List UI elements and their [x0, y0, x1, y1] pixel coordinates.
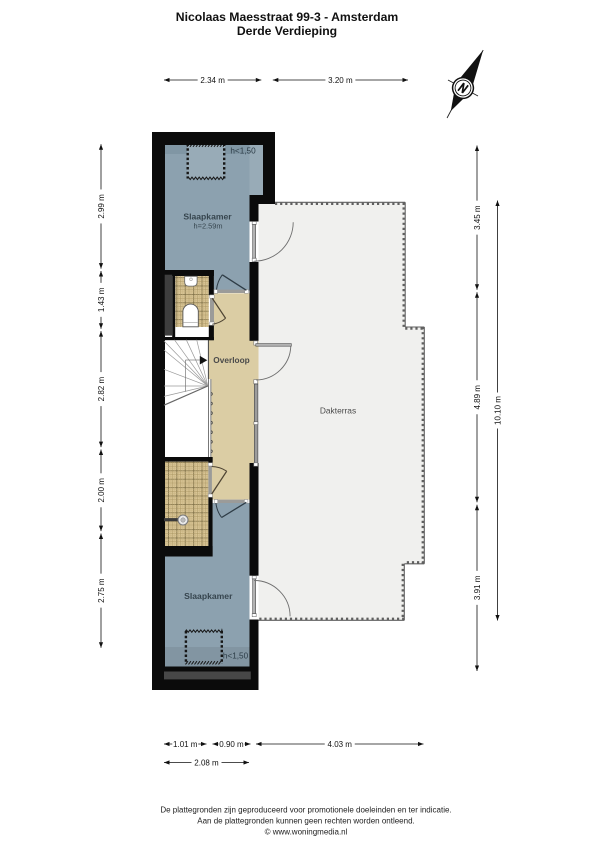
svg-text:2.82 m: 2.82 m	[97, 377, 106, 402]
svg-text:2.34 m: 2.34 m	[200, 76, 225, 85]
svg-text:1.01 m: 1.01 m	[173, 740, 198, 749]
svg-text:4.89 m: 4.89 m	[473, 385, 482, 410]
svg-text:2.75 m: 2.75 m	[97, 578, 106, 603]
svg-text:Aan de plattegronden kunnen ge: Aan de plattegronden kunnen geen rechten…	[197, 817, 415, 826]
svg-text:3.91 m: 3.91 m	[473, 575, 482, 600]
svg-text:Dakterras: Dakterras	[320, 406, 356, 416]
svg-text:0.90 m: 0.90 m	[219, 740, 244, 749]
svg-text:Slaapkamer: Slaapkamer	[184, 591, 233, 601]
svg-text:Derde Verdieping: Derde Verdieping	[237, 24, 337, 38]
svg-text:3.45 m: 3.45 m	[473, 205, 482, 230]
svg-text:2.00 m: 2.00 m	[97, 478, 106, 503]
svg-text:10.10 m: 10.10 m	[493, 396, 502, 425]
svg-text:1.43 m: 1.43 m	[97, 287, 106, 312]
svg-text:De plattegronden zijn geproduc: De plattegronden zijn geproduceerd voor …	[160, 806, 451, 815]
svg-text:Overloop: Overloop	[213, 355, 249, 365]
svg-text:h<1,50: h<1,50	[223, 651, 249, 660]
svg-text:Nicolaas Maesstraat 99-3 - Ams: Nicolaas Maesstraat 99-3 - Amsterdam	[176, 10, 399, 24]
svg-text:2.08 m: 2.08 m	[194, 758, 219, 767]
svg-text:3.20 m: 3.20 m	[328, 76, 353, 85]
svg-text:2.99 m: 2.99 m	[97, 194, 106, 219]
svg-text:Slaapkamer: Slaapkamer	[183, 212, 232, 222]
svg-text:h<1,50: h<1,50	[230, 147, 256, 156]
svg-text:© www.woningmedia.nl: © www.woningmedia.nl	[265, 828, 348, 837]
svg-text:h=2.59m: h=2.59m	[194, 222, 223, 231]
svg-text:4.03 m: 4.03 m	[328, 740, 353, 749]
